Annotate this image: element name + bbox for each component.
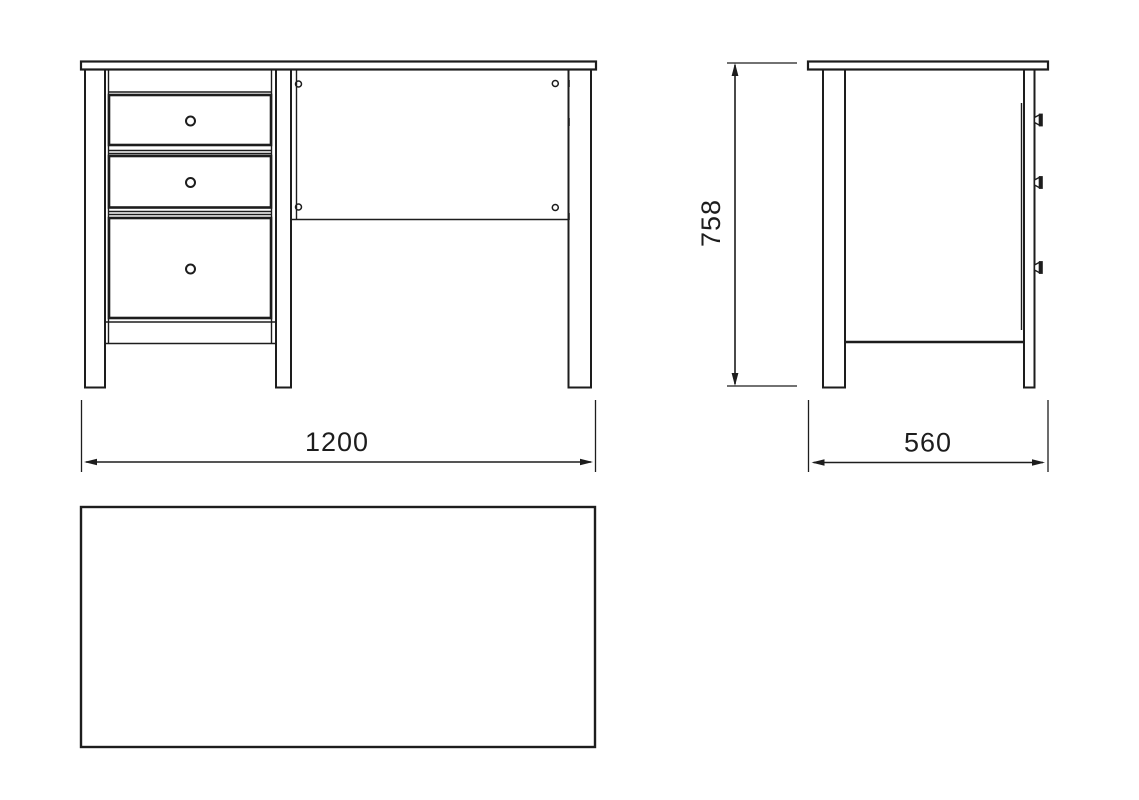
drawer-3-front xyxy=(109,218,271,318)
front-left-leg xyxy=(85,70,105,388)
back-panel-screw-holes xyxy=(296,81,559,211)
side-view xyxy=(808,62,1048,388)
top-view xyxy=(81,507,595,747)
side-knob xyxy=(1035,262,1043,273)
front-right-leg xyxy=(569,70,592,388)
front-tabletop xyxy=(81,62,596,70)
arrowhead-left xyxy=(84,459,97,466)
drawer-1-knob xyxy=(186,117,195,126)
arrowhead-top xyxy=(732,63,739,76)
knob-cap xyxy=(1040,114,1043,125)
arrowhead-left xyxy=(812,459,825,466)
front-drawers xyxy=(109,95,271,318)
knob-cap xyxy=(1040,177,1043,188)
side-drawer-knobs xyxy=(1035,114,1043,273)
side-tabletop xyxy=(808,62,1048,70)
side-knob xyxy=(1035,114,1043,125)
knob-stem xyxy=(1035,262,1040,272)
top-view-outline xyxy=(81,507,595,747)
height-dimension: 758 xyxy=(696,63,797,386)
arrowhead-right xyxy=(580,459,593,466)
front-back-panel xyxy=(291,70,569,220)
knob-stem xyxy=(1035,177,1040,187)
technical-drawing: 1200 758 xyxy=(0,0,1139,800)
arrowhead-right xyxy=(1032,459,1045,466)
width-dimension: 1200 xyxy=(82,400,596,472)
knob-cap xyxy=(1040,262,1043,273)
depth-dimension: 560 xyxy=(809,400,1049,472)
arrowhead-bottom xyxy=(732,373,739,386)
height-dimension-label: 758 xyxy=(696,199,726,247)
drawer-2-knob xyxy=(186,178,195,187)
front-drawer-knobs xyxy=(186,117,195,274)
width-dimension-label: 1200 xyxy=(305,427,369,457)
front-middle-leg xyxy=(276,70,291,388)
side-front-leg xyxy=(1024,70,1035,388)
drawer-3-knob xyxy=(186,265,195,274)
drawing-canvas: 1200 758 xyxy=(0,0,1139,800)
side-knob xyxy=(1035,177,1043,188)
knob-stem xyxy=(1035,115,1040,125)
drawer-1-front xyxy=(109,95,271,145)
screw-hole xyxy=(552,205,558,211)
drawer-2-front xyxy=(109,156,271,208)
depth-dimension-label: 560 xyxy=(904,428,952,458)
side-back-leg xyxy=(823,70,845,388)
screw-hole xyxy=(552,81,558,87)
front-view xyxy=(81,62,596,388)
